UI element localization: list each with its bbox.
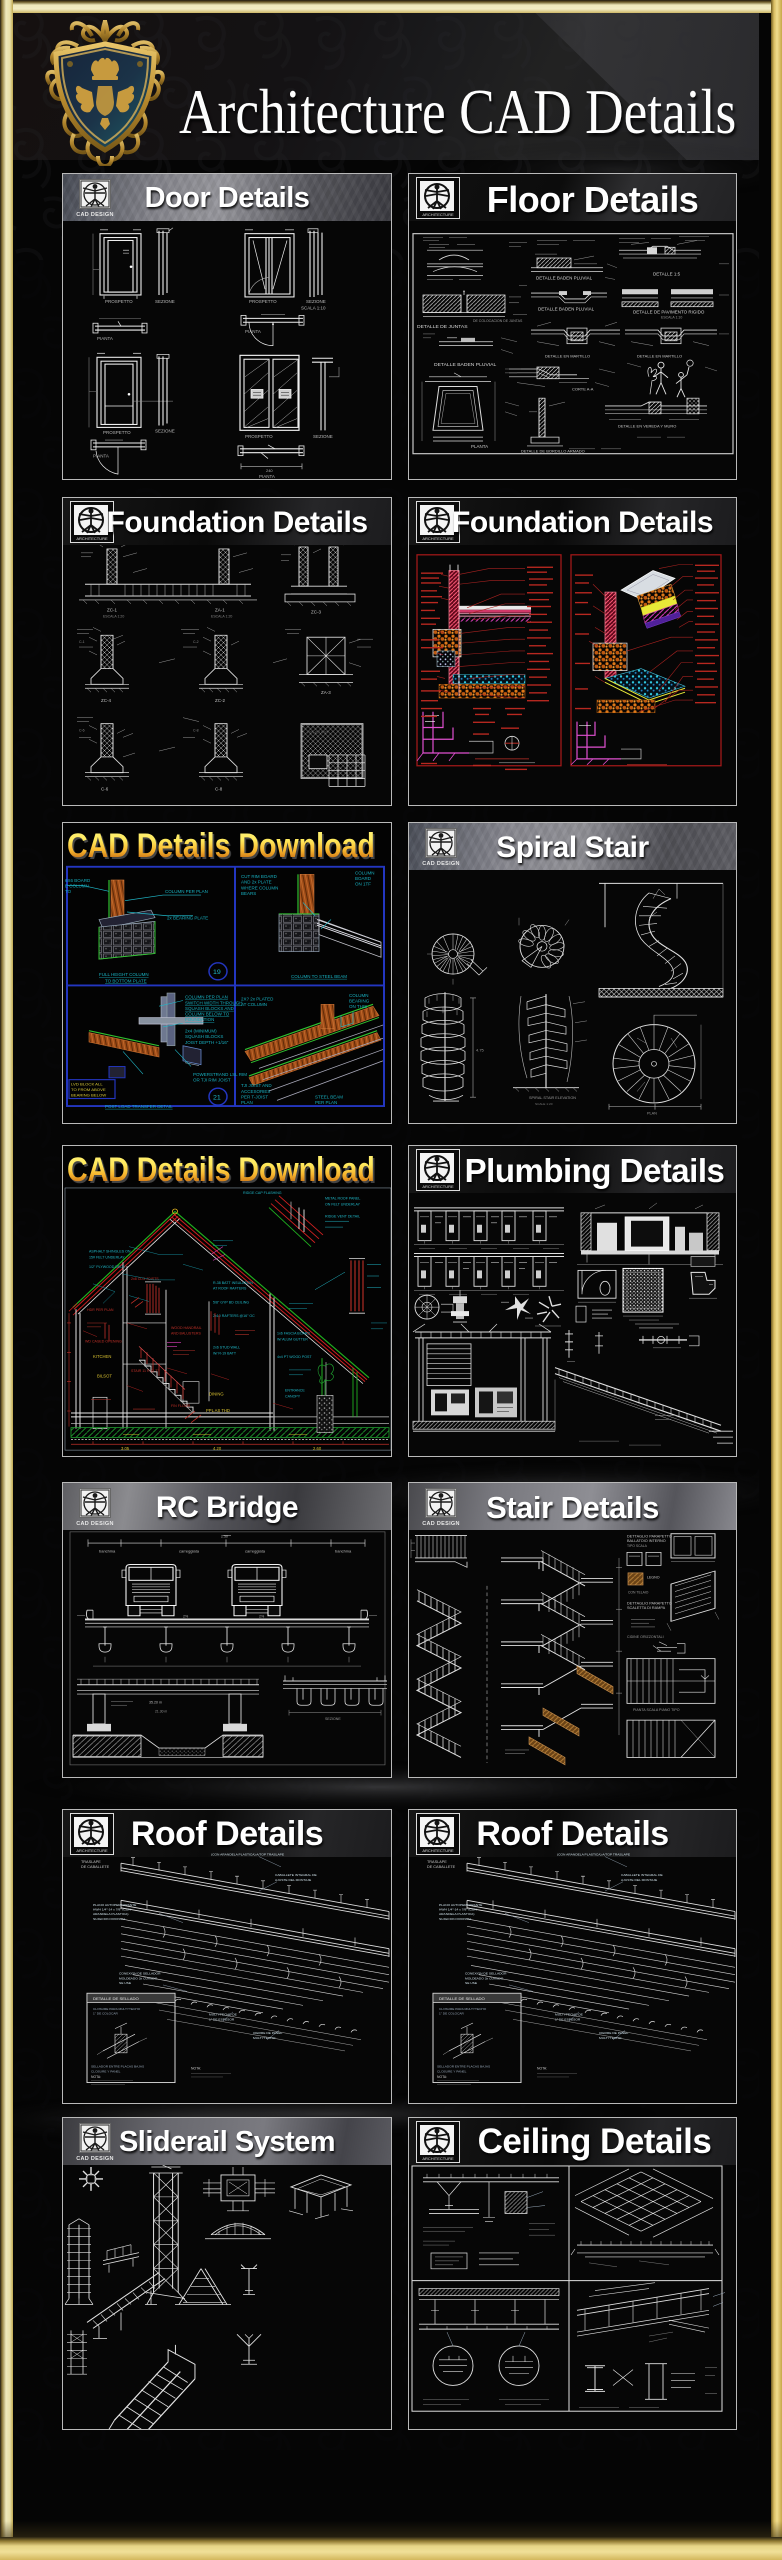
svg-text:DETALLE DE SELLADO: DETALLE DE SELLADO (439, 1996, 485, 2001)
svg-text:CON TELAIO: CON TELAIO (628, 1590, 649, 1594)
svg-text:2.60: 2.60 (313, 1446, 322, 1451)
svg-text:STAIR 11 R @ 7": STAIR 11 R @ 7" (131, 1369, 159, 1373)
svg-text:ACCESORIES: ACCESORIES (241, 1089, 271, 1094)
svg-text:MULTYTECHO: MULTYTECHO (253, 2036, 276, 2040)
svg-text:4.75: 4.75 (476, 1047, 485, 1052)
svg-text:6X6 BOARD: 6X6 BOARD (65, 878, 90, 883)
svg-text:ZC-4: ZC-4 (101, 698, 111, 703)
svg-text:DETALLE DE BORDILLO ARMADO: DETALLE DE BORDILLO ARMADO (521, 449, 585, 454)
svg-text:PROSPETTO: PROSPETTO (105, 299, 133, 304)
svg-text:SEZIONE: SEZIONE (306, 299, 326, 304)
svg-text:COLUMN TO STEEL BEAM: COLUMN TO STEEL BEAM (291, 974, 347, 979)
svg-text:CIDINE ORIZZONTALI: CIDINE ORIZZONTALI (627, 1635, 664, 1639)
svg-text:MOLDEADO 3x CUANDO: MOLDEADO 3x CUANDO (465, 1976, 504, 1980)
svg-text:2x6 STUD WALL: 2x6 STUD WALL (213, 1345, 240, 1349)
svg-text:SQUASH BLOCKS: SQUASH BLOCKS (185, 1034, 223, 1039)
svg-text:NOTA:: NOTA: (91, 2075, 101, 2079)
svg-text:RIDGE CAP FLASHING: RIDGE CAP FLASHING (243, 1191, 282, 1195)
svg-text:CLOSURE Y PANEL: CLOSURE Y PANEL (437, 2069, 467, 2073)
svg-text:METAL ROOF PANEL: METAL ROOF PANEL (325, 1197, 360, 1201)
svg-text:TO FROM ABOVE: TO FROM ABOVE (71, 1087, 106, 1092)
svg-text:SE USE: SE USE (119, 1981, 131, 1985)
svg-text:PROSPETTO: PROSPETTO (249, 299, 277, 304)
svg-text:MULTYTECHO DE: MULTYTECHO DE (555, 2013, 583, 2017)
svg-text:TJI JOIST AND: TJI JOIST AND (241, 1083, 272, 1088)
svg-text:SQUASH BLOCKS AND: SQUASH BLOCKS AND (185, 1006, 234, 1011)
svg-text:CONEXION DE SELLADOR: CONEXION DE SELLADOR (465, 1972, 507, 1976)
svg-text:WD CASED OPENING: WD CASED OPENING (85, 1340, 122, 1344)
svg-text:TRASLAPE: TRASLAPE (81, 1860, 101, 1864)
svg-text:SE USE: SE USE (465, 1981, 477, 1985)
svg-text:RIDGE VENT DETAIL: RIDGE VENT DETAIL (325, 1214, 360, 1218)
svg-text:BOARD: BOARD (355, 876, 371, 881)
svg-text:1" DE ESPESOR: 1" DE ESPESOR (555, 2017, 581, 2021)
svg-text:PLAN: PLAN (647, 1111, 657, 1115)
svg-text:DETALLE BADEN PLUVIAL: DETALLE BADEN PLUVIAL (434, 362, 497, 368)
svg-text:1x6 FASCIA BOARD: 1x6 FASCIA BOARD (277, 1332, 311, 1336)
svg-text:ASPHALT SHINGLES ON: ASPHALT SHINGLES ON (89, 1250, 131, 1254)
svg-text:carreggiata: carreggiata (245, 1549, 266, 1553)
svg-text:DE CABALLETE: DE CABALLETE (81, 1865, 110, 1869)
svg-text:240: 240 (266, 468, 273, 473)
svg-text:ON FELT UNDERLAY: ON FELT UNDERLAY (325, 1203, 361, 1207)
svg-text:ZC-1: ZC-1 (107, 608, 117, 613)
svg-text:banchina: banchina (99, 1549, 116, 1553)
svg-text:POWERSTRAND LSL RIM: POWERSTRAND LSL RIM (193, 1072, 247, 1077)
svg-text:carreggiata: carreggiata (179, 1549, 200, 1553)
svg-text:PIANTA: PIANTA (93, 454, 109, 459)
svg-text:SEZIONE: SEZIONE (313, 434, 333, 439)
svg-text:2x4 (MINIMUM): 2x4 (MINIMUM) (185, 1029, 217, 1034)
svg-text:DETALLE EN VEREDA Y MURO: DETALLE EN VEREDA Y MURO (618, 423, 676, 428)
svg-text:SCALETTA DI RAMPA: SCALETTA DI RAMPA (627, 1606, 666, 1610)
svg-text:COLUMN PER PLAN: COLUMN PER PLAN (165, 889, 208, 894)
svg-text:1" DE ESPESOR: 1" DE ESPESOR (209, 2017, 235, 2021)
svg-text:E COLUMN: E COLUMN (65, 884, 89, 889)
svg-text:AND 2x PLATE: AND 2x PLATE (241, 880, 272, 885)
svg-text:CABALLETE INTEGRAL DE: CABALLETE INTEGRAL DE (275, 1873, 317, 1877)
svg-text:OR TJI RIM JOIST: OR TJI RIM JOIST (193, 1078, 231, 1083)
svg-text:DE CABALLETE: DE CABALLETE (427, 1865, 456, 1869)
svg-text:(CON ARANDELA PLASTICA) A/TOP: (CON ARANDELA PLASTICA) A/TOP TRASLAPE (557, 1853, 630, 1857)
svg-text:19: 19 (213, 969, 221, 976)
svg-text:COLUMN: COLUMN (355, 870, 374, 875)
svg-text:BALLATOIO INTERNO: BALLATOIO INTERNO (627, 1539, 666, 1543)
svg-text:WOOD HANDRAIL: WOOD HANDRAIL (171, 1326, 202, 1330)
svg-text:DETALLE EN MARTILLO: DETALLE EN MARTILLO (637, 353, 682, 358)
svg-text:WHERE COLUMN: WHERE COLUMN (241, 885, 278, 890)
svg-text:W/ ALUM GUTTER: W/ ALUM GUTTER (277, 1338, 308, 1342)
svg-text:NOTA:: NOTA: (191, 2067, 201, 2071)
svg-text:HWH 1/4"-14 x 7/8" (CON: HWH 1/4"-14 x 7/8" (CON (439, 1908, 477, 1912)
svg-text:CUT RIM BOARD: CUT RIM BOARD (241, 874, 277, 879)
svg-text:CABALLETE INTEGRAL DE: CABALLETE INTEGRAL DE (621, 1873, 663, 1877)
svg-text:4.20: 4.20 (213, 1446, 222, 1451)
svg-text:AND BALUSTERS: AND BALUSTERS (171, 1332, 202, 1336)
svg-text:NOTA:: NOTA: (437, 2075, 447, 2079)
svg-text:PER T-JOIST: PER T-JOIST (241, 1095, 268, 1100)
svg-text:4x4 PT WOOD POST: 4x4 PT WOOD POST (277, 1355, 312, 1359)
svg-text:15# FELT UNDERLAY: 15# FELT UNDERLAY (89, 1255, 125, 1259)
svg-text:MULTYTECHO DE: MULTYTECHO DE (209, 2013, 237, 2017)
svg-text:SUJECION FRONTAL: SUJECION FRONTAL (93, 1917, 126, 1921)
svg-text:DETALLE DE JUNTAS: DETALLE DE JUNTAS (417, 324, 468, 330)
svg-text:DETTAGLIO PARAPETTO: DETTAGLIO PARAPETTO (627, 1602, 672, 1606)
svg-text:SCALA 1:10: SCALA 1:10 (301, 306, 326, 311)
svg-text:CANOPY: CANOPY (285, 1394, 301, 1398)
svg-text:PLANTA: PLANTA (471, 444, 488, 449)
svg-text:SPIRAL STAIR ELEVATION: SPIRAL STAIR ELEVATION (529, 1096, 576, 1100)
svg-text:C-6: C-6 (79, 728, 85, 732)
svg-text:PER PLAN: PER PLAN (315, 1100, 337, 1105)
svg-text:W/ R-19 BATT: W/ R-19 BATT (213, 1351, 237, 1355)
svg-text:C-2: C-2 (193, 640, 199, 644)
svg-text:ZC-2: ZC-2 (215, 698, 225, 703)
svg-text:SEZIONE: SEZIONE (155, 299, 175, 304)
svg-text:SEZIONE: SEZIONE (325, 1717, 341, 1721)
svg-text:BEARS: BEARS (241, 891, 256, 896)
svg-text:FULL HEIGHT COLUMN: FULL HEIGHT COLUMN (99, 972, 149, 977)
svg-text:PROSPETTO: PROSPETTO (245, 434, 273, 439)
svg-text:2%: 2% (183, 1615, 188, 1619)
svg-text:PIANTA: PIANTA (97, 336, 113, 341)
svg-text:C-8: C-8 (215, 786, 223, 791)
svg-text:BEARING: BEARING (349, 999, 370, 1004)
svg-text:SCALE 1:20: SCALE 1:20 (535, 1102, 553, 1106)
svg-text:ESCALA 1:20: ESCALA 1:20 (103, 615, 124, 619)
svg-text:JOIST DEPTH +1/16": JOIST DEPTH +1/16" (185, 1040, 229, 1045)
svg-text:LVD BLOCK ALL: LVD BLOCK ALL (71, 1081, 103, 1086)
svg-text:ON 1TF: ON 1TF (355, 882, 371, 887)
svg-text:3.05: 3.05 (121, 1446, 130, 1451)
svg-text:STEEL BEAM: STEEL BEAM (315, 1095, 343, 1100)
svg-text:DETALLE BADEN PLUVIAL: DETALLE BADEN PLUVIAL (538, 307, 595, 312)
svg-text:DETALLE DE SELLADO: DETALLE DE SELLADO (93, 1996, 139, 2001)
svg-text:AJUSTE DEL MONTAJE: AJUSTE DEL MONTAJE (275, 1878, 311, 1882)
svg-text:KITCHEN: KITCHEN (93, 1354, 111, 1359)
svg-text:CIERRE DE PANEL: CIERRE DE PANEL (253, 2031, 283, 2035)
svg-text:DETALLE BADEN PLUVIAL: DETALLE BADEN PLUVIAL (536, 275, 593, 280)
svg-text:PROSPETTO: PROSPETTO (103, 430, 131, 435)
svg-text:1" DE COLOCAR: 1" DE COLOCAR (93, 2012, 119, 2016)
svg-text:HDR PER PLAN: HDR PER PLAN (87, 1308, 114, 1312)
svg-text:2x BEARING PLATE: 2x BEARING PLATE (167, 916, 208, 921)
svg-text:ZA-1: ZA-1 (215, 608, 225, 613)
svg-text:POLIDURO: POLIDURO (307, 729, 328, 734)
svg-text:21.30 m: 21.30 m (155, 1710, 167, 1714)
svg-text:BEARING BELOW: BEARING BELOW (71, 1093, 106, 1098)
svg-text:DETTAGLIO PARAPETTO: DETTAGLIO PARAPETTO (627, 1535, 672, 1539)
svg-text:TIPO SCALA: TIPO SCALA (627, 1544, 648, 1548)
svg-text:SELLADOR ENTRE PLACAS BAJAS: SELLADOR ENTRE PLACAS BAJAS (437, 2065, 490, 2069)
svg-text:PIANTA SCALA PIANO TIPO: PIANTA SCALA PIANO TIPO (633, 1708, 680, 1712)
svg-text:ESCALA 1:10: ESCALA 1:10 (661, 315, 682, 319)
svg-text:PIANTA: PIANTA (259, 474, 275, 479)
svg-text:SWITCH WIDTH THROUGH: SWITCH WIDTH THROUGH (185, 1000, 243, 1005)
svg-text:DETALLE DE PAVIMENTO RIGIDO: DETALLE DE PAVIMENTO RIGIDO (633, 310, 705, 315)
svg-text:COLUMN BELOW TO: COLUMN BELOW TO (185, 1012, 230, 1017)
svg-text:2X? 2x PLATED: 2X? 2x PLATED (241, 997, 273, 1002)
svg-text:(CON ARANDELA PLASTICA) A/TOP: (CON ARANDELA PLASTICA) A/TOP TRASLAPE (211, 1853, 284, 1857)
svg-text:MOLDEADO 3x CUANDO: MOLDEADO 3x CUANDO (119, 1976, 158, 1980)
svg-text:SELLADOR ENTRE PLACAS BAJAS: SELLADOR ENTRE PLACAS BAJAS (91, 2065, 144, 2069)
svg-text:LEGNO: LEGNO (647, 1576, 660, 1580)
svg-text:BILSOT: BILSOT (97, 1374, 112, 1379)
svg-text:ESCALA 1:20: ESCALA 1:20 (211, 615, 232, 619)
svg-text:DE COLOCACION DE JUNTAS: DE COLOCACION DE JUNTAS (473, 319, 523, 323)
svg-text:PIANTA: PIANTA (245, 329, 261, 334)
svg-text:ARANDELA PLASTICA): ARANDELA PLASTICA) (439, 1912, 474, 1916)
svg-text:CLOSURE PARA MULTYTECHO: CLOSURE PARA MULTYTECHO (93, 2007, 141, 2011)
svg-text:ON THIS: ON THIS (349, 1004, 367, 1009)
svg-text:NOTA:: NOTA: (537, 2067, 547, 2071)
svg-text:2x8 CLG JOISTS: 2x8 CLG JOISTS (131, 1277, 159, 1281)
svg-text:FOUNDATION: FOUNDATION (185, 1017, 214, 1022)
svg-text:PPL AS THD: PPL AS THD (206, 1408, 230, 1413)
svg-text:CONEXION DE SELLADOR: CONEXION DE SELLADOR (119, 1972, 161, 1976)
svg-text:C-1: C-1 (79, 640, 85, 644)
svg-text:ENTRANCE: ENTRANCE (285, 1388, 305, 1392)
svg-text:ZA-3: ZA-3 (321, 690, 331, 695)
svg-text:TRASLAPE: TRASLAPE (427, 1860, 447, 1864)
svg-text:AJUSTE DEL MONTAJE: AJUSTE DEL MONTAJE (621, 1878, 657, 1882)
svg-text:COLUMN PER PLAN: COLUMN PER PLAN (185, 995, 228, 1000)
svg-text:1/2" PLYWOOD DECK: 1/2" PLYWOOD DECK (89, 1265, 126, 1269)
svg-text:SEZIONE: SEZIONE (155, 428, 175, 433)
svg-text:SUJECION FRONTAL: SUJECION FRONTAL (439, 1917, 472, 1921)
svg-text:ZC-3: ZC-3 (311, 610, 321, 615)
svg-text:FIN FLOOR: FIN FLOOR (171, 1404, 191, 1408)
svg-text:TO BOTTOM PLATE: TO BOTTOM PLATE (105, 979, 147, 984)
svg-text:TO: TO (65, 889, 72, 894)
svg-text:DETALLE 1:5: DETALLE 1:5 (653, 272, 681, 277)
svg-text:AT COLUMN: AT COLUMN (241, 1002, 267, 1007)
svg-text:5/8" GYP BD CEILING: 5/8" GYP BD CEILING (213, 1300, 249, 1304)
svg-text:2%: 2% (259, 1615, 264, 1619)
svg-text:PLANO AUTOPERFORANTE: PLANO AUTOPERFORANTE (93, 1903, 136, 1907)
svg-text:R-38 BATT INSULATION: R-38 BATT INSULATION (213, 1281, 253, 1285)
svg-text:21: 21 (213, 1095, 221, 1102)
svg-text:COLUMN: COLUMN (349, 993, 368, 998)
svg-text:CLOSURE Y PANEL: CLOSURE Y PANEL (91, 2069, 121, 2073)
svg-text:PLANO AUTOPERFORANTE: PLANO AUTOPERFORANTE (439, 1903, 482, 1907)
svg-text:MULTYTECHO: MULTYTECHO (599, 2036, 622, 2040)
svg-text:HWH 1/4"-14 x 7/8" (CON: HWH 1/4"-14 x 7/8" (CON (93, 1908, 131, 1912)
svg-text:35.20 m: 35.20 m (149, 1700, 162, 1704)
svg-text:2.50: 2.50 (221, 1535, 228, 1539)
svg-text:C-6: C-6 (101, 786, 109, 791)
svg-text:C-8: C-8 (193, 728, 199, 732)
svg-text:banchina: banchina (335, 1549, 352, 1553)
svg-text:CLOSURE PARA MULTYTECHO: CLOSURE PARA MULTYTECHO (439, 2007, 487, 2011)
svg-text:DETALLE EN MARTILLO: DETALLE EN MARTILLO (545, 353, 590, 358)
svg-text:AT ROOF RAFTERS: AT ROOF RAFTERS (213, 1287, 247, 1291)
svg-text:1" DE COLOCAR: 1" DE COLOCAR (439, 2012, 465, 2016)
svg-text:DINING: DINING (209, 1391, 224, 1396)
svg-text:POST LOAD TRANSFER DETAIL: POST LOAD TRANSFER DETAIL (105, 1104, 173, 1109)
svg-text:PLAN: PLAN (241, 1100, 253, 1105)
svg-text:CORTE A-A: CORTE A-A (572, 386, 594, 391)
svg-text:CIERRE DE PANEL: CIERRE DE PANEL (599, 2031, 629, 2035)
svg-text:ARANDELA PLASTICA): ARANDELA PLASTICA) (93, 1912, 128, 1916)
